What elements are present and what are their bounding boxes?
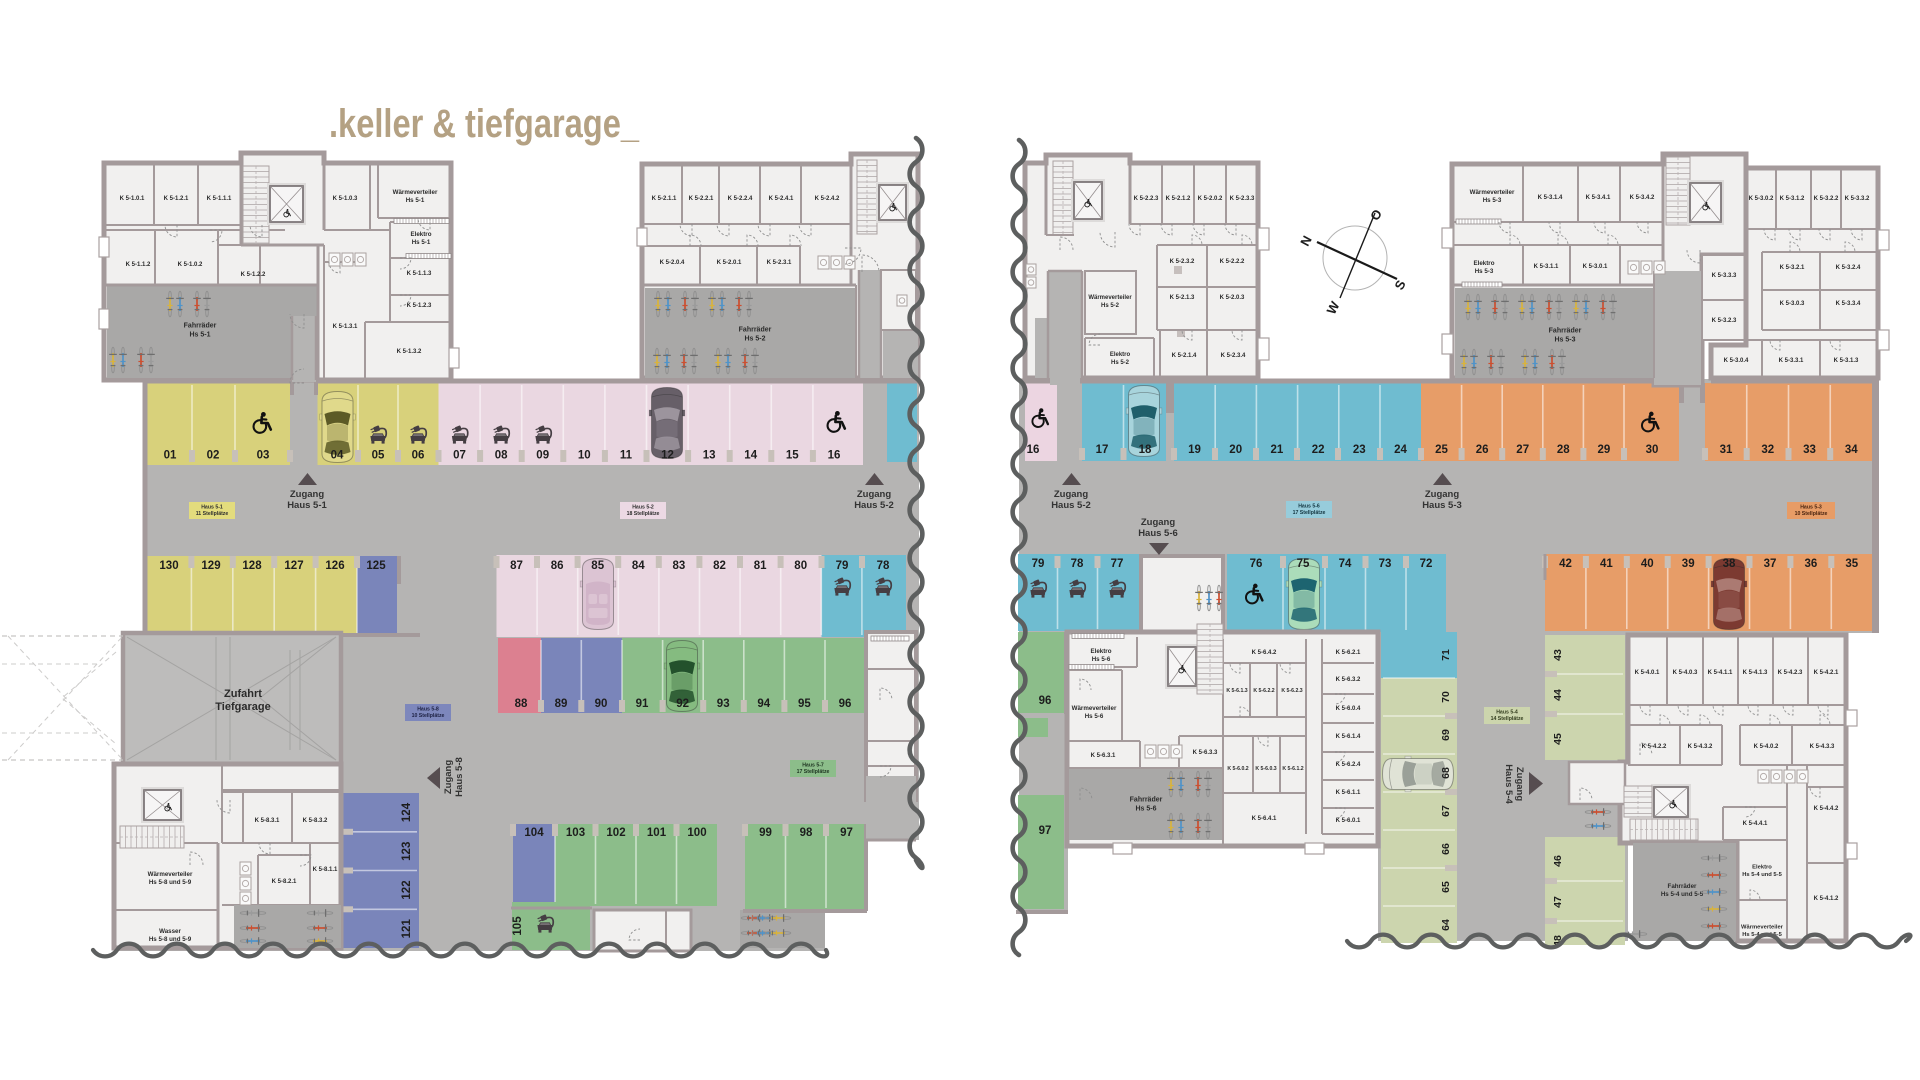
svg-text:K 5-2.0.3: K 5-2.0.3 bbox=[1220, 295, 1245, 301]
svg-text:Elektro: Elektro bbox=[1752, 864, 1772, 870]
svg-text:31: 31 bbox=[1720, 444, 1733, 456]
svg-text:K 5-1.2.3: K 5-1.2.3 bbox=[407, 303, 432, 309]
svg-text:39: 39 bbox=[1682, 558, 1695, 570]
svg-text:21: 21 bbox=[1271, 444, 1284, 456]
svg-text:K 5-1.0.2: K 5-1.0.2 bbox=[178, 262, 203, 268]
svg-text:19: 19 bbox=[1188, 444, 1201, 456]
svg-text:Hs 5-1: Hs 5-1 bbox=[406, 197, 425, 204]
svg-text:04: 04 bbox=[331, 450, 344, 462]
svg-text:29: 29 bbox=[1598, 444, 1611, 456]
svg-text:14 Stellplätze: 14 Stellplätze bbox=[1491, 716, 1524, 722]
svg-text:Haus 5-3: Haus 5-3 bbox=[1800, 505, 1822, 511]
svg-text:17 Stellplätze: 17 Stellplätze bbox=[1293, 510, 1326, 516]
svg-text:K 5-1.0.3: K 5-1.0.3 bbox=[333, 196, 358, 202]
svg-text:K 5-4.2.3: K 5-4.2.3 bbox=[1778, 670, 1803, 676]
svg-text:17: 17 bbox=[1096, 444, 1109, 456]
svg-text:38: 38 bbox=[1723, 558, 1736, 570]
svg-text:.keller & tiefgarage_: .keller & tiefgarage_ bbox=[329, 102, 640, 146]
svg-text:K 5-3.2.1: K 5-3.2.1 bbox=[1780, 265, 1805, 271]
svg-text:Hs 5-3: Hs 5-3 bbox=[1475, 268, 1494, 275]
svg-text:Hs 5-8 und 5-9: Hs 5-8 und 5-9 bbox=[149, 879, 192, 886]
svg-text:K 5-6.2.4: K 5-6.2.4 bbox=[1336, 762, 1361, 768]
svg-text:K 5-1.1.2: K 5-1.1.2 bbox=[126, 262, 151, 268]
svg-text:K 5-2.4.2: K 5-2.4.2 bbox=[815, 196, 840, 202]
svg-text:101: 101 bbox=[647, 827, 667, 839]
svg-text:26: 26 bbox=[1476, 444, 1489, 456]
svg-text:K 5-2.1.1: K 5-2.1.1 bbox=[652, 196, 677, 202]
svg-text:80: 80 bbox=[794, 560, 807, 572]
svg-text:Zufahrt: Zufahrt bbox=[224, 688, 262, 700]
svg-text:K 5-2.2.2: K 5-2.2.2 bbox=[1220, 259, 1245, 265]
svg-text:20: 20 bbox=[1229, 444, 1242, 456]
svg-text:83: 83 bbox=[673, 560, 686, 572]
svg-text:K 5-3.3.1: K 5-3.3.1 bbox=[1779, 358, 1804, 364]
svg-text:41: 41 bbox=[1600, 558, 1613, 570]
svg-text:45: 45 bbox=[1552, 733, 1564, 745]
svg-text:K 5-6.3.3: K 5-6.3.3 bbox=[1193, 750, 1218, 756]
svg-text:K 5-4.0.2: K 5-4.0.2 bbox=[1754, 744, 1779, 750]
svg-text:12: 12 bbox=[661, 450, 674, 462]
svg-text:02: 02 bbox=[207, 450, 220, 462]
svg-text:74: 74 bbox=[1339, 558, 1352, 570]
svg-text:72: 72 bbox=[1420, 558, 1433, 570]
svg-text:K 5-3.3.2: K 5-3.3.2 bbox=[1845, 196, 1870, 202]
svg-text:127: 127 bbox=[284, 560, 303, 572]
svg-text:K 5-2.2.4: K 5-2.2.4 bbox=[728, 196, 753, 202]
svg-text:66: 66 bbox=[1440, 843, 1452, 855]
svg-text:K 5-3.1.2: K 5-3.1.2 bbox=[1780, 196, 1805, 202]
svg-text:75: 75 bbox=[1297, 558, 1310, 570]
svg-text:K 5-3.0.4: K 5-3.0.4 bbox=[1724, 358, 1749, 364]
svg-text:97: 97 bbox=[1039, 825, 1052, 837]
svg-text:K 5-1.2.2: K 5-1.2.2 bbox=[241, 272, 266, 278]
svg-text:Haus 5-6: Haus 5-6 bbox=[1138, 528, 1178, 539]
svg-text:K 5-4.3.2: K 5-4.3.2 bbox=[1688, 744, 1713, 750]
svg-text:78: 78 bbox=[877, 560, 890, 572]
svg-text:28: 28 bbox=[1557, 444, 1570, 456]
svg-text:Elektro: Elektro bbox=[411, 231, 432, 238]
svg-text:86: 86 bbox=[551, 560, 564, 572]
svg-text:81: 81 bbox=[754, 560, 767, 572]
svg-text:128: 128 bbox=[242, 560, 262, 572]
svg-text:Zugang: Zugang bbox=[1425, 489, 1459, 500]
svg-text:K 5-2.0.4: K 5-2.0.4 bbox=[660, 260, 685, 266]
svg-text:Wärmeverteiler: Wärmeverteiler bbox=[1741, 924, 1784, 930]
svg-text:K 5-6.4.1: K 5-6.4.1 bbox=[1252, 816, 1277, 822]
svg-text:K 5-2.3.1: K 5-2.3.1 bbox=[767, 260, 792, 266]
svg-text:18 Stellplätze: 18 Stellplätze bbox=[627, 511, 660, 517]
svg-text:09: 09 bbox=[536, 450, 549, 462]
svg-text:46: 46 bbox=[1552, 855, 1564, 867]
svg-text:K 5-6.2.2: K 5-6.2.2 bbox=[1253, 688, 1274, 694]
svg-text:K 5-6.2.3: K 5-6.2.3 bbox=[1281, 688, 1302, 694]
svg-text:78: 78 bbox=[1071, 558, 1084, 570]
svg-text:Hs 5-4 und 5-5: Hs 5-4 und 5-5 bbox=[1661, 891, 1704, 898]
svg-text:15: 15 bbox=[786, 450, 799, 462]
svg-text:10 Stellplätze: 10 Stellplätze bbox=[1795, 511, 1828, 517]
svg-text:Zugang: Zugang bbox=[1141, 517, 1175, 528]
svg-text:Hs 5-1: Hs 5-1 bbox=[412, 239, 431, 246]
svg-text:Wärmeverteiler: Wärmeverteiler bbox=[1470, 189, 1515, 196]
svg-text:Hs 5-8 und 5-9: Hs 5-8 und 5-9 bbox=[149, 936, 192, 943]
svg-text:Wärmeverteiler: Wärmeverteiler bbox=[1072, 705, 1117, 712]
svg-text:K 5-2.3.3: K 5-2.3.3 bbox=[1230, 196, 1255, 202]
svg-text:K 5-2.0.1: K 5-2.0.1 bbox=[717, 260, 742, 266]
svg-text:07: 07 bbox=[453, 450, 466, 462]
svg-text:93: 93 bbox=[717, 698, 730, 710]
svg-text:Zugang: Zugang bbox=[1514, 767, 1525, 801]
svg-text:K 5-6.1.2: K 5-6.1.2 bbox=[1282, 766, 1303, 772]
svg-text:K 5-4.2.2: K 5-4.2.2 bbox=[1642, 744, 1667, 750]
svg-text:18: 18 bbox=[1139, 444, 1152, 456]
svg-text:K 5-4.4.1: K 5-4.4.1 bbox=[1743, 821, 1768, 827]
svg-text:K 5-4.3.3: K 5-4.3.3 bbox=[1810, 744, 1835, 750]
svg-text:96: 96 bbox=[1039, 695, 1052, 707]
svg-text:K 5-2.4.1: K 5-2.4.1 bbox=[769, 196, 794, 202]
svg-text:77: 77 bbox=[1111, 558, 1124, 570]
svg-text:103: 103 bbox=[566, 827, 585, 839]
svg-text:33: 33 bbox=[1803, 444, 1816, 456]
svg-text:126: 126 bbox=[325, 560, 344, 572]
svg-text:Hs 5-2: Hs 5-2 bbox=[1111, 360, 1130, 366]
svg-text:K 5-1.0.1: K 5-1.0.1 bbox=[120, 196, 145, 202]
svg-text:Hs 5-3: Hs 5-3 bbox=[1483, 197, 1502, 204]
svg-text:25: 25 bbox=[1435, 444, 1448, 456]
svg-text:24: 24 bbox=[1394, 444, 1407, 456]
svg-text:17 Stellplätze: 17 Stellplätze bbox=[797, 769, 830, 775]
svg-text:K 5-3.2.3: K 5-3.2.3 bbox=[1712, 318, 1737, 324]
svg-text:K 5-6.3.1: K 5-6.3.1 bbox=[1091, 753, 1116, 759]
svg-text:06: 06 bbox=[412, 450, 425, 462]
svg-text:96: 96 bbox=[839, 698, 852, 710]
svg-text:124: 124 bbox=[401, 802, 413, 822]
svg-text:K 5-6.2.1: K 5-6.2.1 bbox=[1336, 650, 1361, 656]
svg-text:K 5-3.0.2: K 5-3.0.2 bbox=[1749, 196, 1774, 202]
svg-text:Wärmeverteiler: Wärmeverteiler bbox=[1088, 295, 1132, 301]
svg-text:98: 98 bbox=[800, 827, 813, 839]
svg-text:70: 70 bbox=[1440, 691, 1452, 703]
svg-text:40: 40 bbox=[1641, 558, 1654, 570]
svg-text:Haus 5-7: Haus 5-7 bbox=[802, 763, 824, 769]
svg-text:Haus 5-6: Haus 5-6 bbox=[1298, 504, 1320, 510]
svg-text:Wärmeverteiler: Wärmeverteiler bbox=[148, 871, 193, 878]
svg-text:K 5-6.0.1: K 5-6.0.1 bbox=[1336, 818, 1361, 824]
svg-text:79: 79 bbox=[836, 560, 849, 572]
svg-text:22: 22 bbox=[1312, 444, 1325, 456]
svg-text:69: 69 bbox=[1440, 729, 1452, 741]
svg-text:Fahrräder: Fahrräder bbox=[1130, 797, 1163, 804]
svg-text:05: 05 bbox=[372, 450, 385, 462]
svg-text:Fahrräder: Fahrräder bbox=[1549, 328, 1582, 335]
svg-text:85: 85 bbox=[591, 560, 604, 572]
svg-text:Haus 5-2: Haus 5-2 bbox=[1051, 500, 1091, 511]
svg-text:K 5-2.1.3: K 5-2.1.3 bbox=[1170, 295, 1195, 301]
svg-text:122: 122 bbox=[401, 880, 413, 899]
svg-text:K 5-1.3.2: K 5-1.3.2 bbox=[397, 349, 422, 355]
svg-text:Hs 5-6: Hs 5-6 bbox=[1085, 713, 1104, 720]
svg-text:73: 73 bbox=[1379, 558, 1392, 570]
svg-text:82: 82 bbox=[713, 560, 726, 572]
svg-text:130: 130 bbox=[159, 560, 178, 572]
svg-text:13: 13 bbox=[703, 450, 716, 462]
svg-text:34: 34 bbox=[1845, 444, 1858, 456]
svg-text:K 5-3.0.3: K 5-3.0.3 bbox=[1780, 301, 1805, 307]
svg-text:K 5-6.0.3: K 5-6.0.3 bbox=[1255, 766, 1276, 772]
svg-text:89: 89 bbox=[555, 698, 568, 710]
svg-text:94: 94 bbox=[757, 698, 770, 710]
svg-text:Elektro: Elektro bbox=[1474, 260, 1495, 267]
svg-text:99: 99 bbox=[759, 827, 772, 839]
svg-text:K 5-8.2.1: K 5-8.2.1 bbox=[272, 879, 297, 885]
svg-text:Hs 5-3: Hs 5-3 bbox=[1554, 337, 1575, 344]
svg-text:10 Stellplätze: 10 Stellplätze bbox=[412, 713, 445, 719]
svg-text:76: 76 bbox=[1250, 558, 1263, 570]
svg-text:102: 102 bbox=[606, 827, 625, 839]
svg-text:K 5-3.3.4: K 5-3.3.4 bbox=[1836, 301, 1861, 307]
svg-text:35: 35 bbox=[1845, 558, 1858, 570]
svg-text:92: 92 bbox=[676, 698, 689, 710]
svg-text:71: 71 bbox=[1440, 649, 1452, 661]
svg-text:Haus 5-1: Haus 5-1 bbox=[201, 505, 223, 511]
svg-text:Hs 5-6: Hs 5-6 bbox=[1092, 656, 1111, 663]
svg-text:K 5-2.3.2: K 5-2.3.2 bbox=[1170, 259, 1195, 265]
svg-text:90: 90 bbox=[595, 698, 608, 710]
svg-text:121: 121 bbox=[401, 919, 413, 939]
svg-text:97: 97 bbox=[840, 827, 853, 839]
svg-text:Hs 5-2: Hs 5-2 bbox=[1101, 303, 1120, 309]
svg-text:100: 100 bbox=[687, 827, 706, 839]
svg-text:30: 30 bbox=[1646, 444, 1659, 456]
svg-text:K 5-3.1.3: K 5-3.1.3 bbox=[1834, 358, 1859, 364]
svg-text:Haus 5-3: Haus 5-3 bbox=[1422, 500, 1462, 511]
svg-text:87: 87 bbox=[510, 560, 523, 572]
svg-text:84: 84 bbox=[632, 560, 645, 572]
svg-text:K 5-6.1.3: K 5-6.1.3 bbox=[1226, 688, 1247, 694]
svg-text:Haus 5-4: Haus 5-4 bbox=[1496, 710, 1518, 716]
svg-text:K 5-2.2.1: K 5-2.2.1 bbox=[689, 196, 714, 202]
svg-text:Fahrräder: Fahrräder bbox=[739, 327, 772, 334]
svg-text:K 5-3.1.4: K 5-3.1.4 bbox=[1538, 195, 1563, 201]
svg-text:125: 125 bbox=[366, 560, 386, 572]
svg-text:44: 44 bbox=[1552, 689, 1564, 701]
svg-text:K 5-4.1.1: K 5-4.1.1 bbox=[1708, 670, 1733, 676]
svg-text:123: 123 bbox=[401, 842, 413, 861]
svg-text:K 5-6.3.2: K 5-6.3.2 bbox=[1336, 677, 1361, 683]
svg-text:37: 37 bbox=[1764, 558, 1777, 570]
svg-text:11: 11 bbox=[620, 450, 633, 462]
svg-text:K 5-2.0.2: K 5-2.0.2 bbox=[1198, 196, 1223, 202]
svg-text:Haus 5-2: Haus 5-2 bbox=[854, 500, 894, 511]
svg-text:K 5-2.1.2: K 5-2.1.2 bbox=[1166, 196, 1191, 202]
svg-text:91: 91 bbox=[636, 698, 649, 710]
svg-text:Hs 5-1: Hs 5-1 bbox=[189, 332, 210, 339]
svg-text:K 5-2.2.3: K 5-2.2.3 bbox=[1134, 196, 1159, 202]
svg-text:Haus 5-2: Haus 5-2 bbox=[632, 505, 654, 511]
svg-text:K 5-1.3.1: K 5-1.3.1 bbox=[333, 324, 358, 330]
svg-text:14: 14 bbox=[744, 450, 757, 462]
svg-text:Wärmeverteiler: Wärmeverteiler bbox=[393, 189, 438, 196]
svg-text:Fahrräder: Fahrräder bbox=[184, 323, 217, 330]
svg-text:K 5-3.0.1: K 5-3.0.1 bbox=[1583, 264, 1608, 270]
svg-text:K 5-6.4.2: K 5-6.4.2 bbox=[1252, 650, 1277, 656]
svg-text:Fahrräder: Fahrräder bbox=[1668, 883, 1697, 890]
svg-text:105: 105 bbox=[512, 916, 524, 936]
svg-text:K 5-4.1.3: K 5-4.1.3 bbox=[1743, 670, 1768, 676]
svg-text:K 5-4.0.1: K 5-4.0.1 bbox=[1635, 670, 1660, 676]
svg-text:K 5-6.0.2: K 5-6.0.2 bbox=[1227, 766, 1248, 772]
svg-text:43: 43 bbox=[1552, 649, 1564, 661]
svg-text:Haus 5-4: Haus 5-4 bbox=[1503, 764, 1514, 804]
svg-text:16: 16 bbox=[1027, 444, 1040, 456]
svg-text:K 5-6.1.1: K 5-6.1.1 bbox=[1336, 790, 1361, 796]
svg-text:67: 67 bbox=[1440, 805, 1452, 817]
svg-text:Zugang: Zugang bbox=[290, 489, 324, 500]
svg-text:K 5-8.1.1: K 5-8.1.1 bbox=[313, 867, 338, 873]
svg-text:36: 36 bbox=[1805, 558, 1818, 570]
svg-text:K 5-8.3.1: K 5-8.3.1 bbox=[255, 818, 280, 824]
svg-text:K 5-2.3.4: K 5-2.3.4 bbox=[1221, 353, 1246, 359]
svg-text:K 5-3.1.1: K 5-3.1.1 bbox=[1534, 264, 1559, 270]
svg-text:88: 88 bbox=[515, 698, 528, 710]
svg-text:Wasser: Wasser bbox=[159, 928, 181, 935]
svg-text:79: 79 bbox=[1032, 558, 1045, 570]
svg-text:K 5-6.0.4: K 5-6.0.4 bbox=[1336, 706, 1361, 712]
svg-text:K 5-4.0.3: K 5-4.0.3 bbox=[1673, 670, 1698, 676]
svg-text:47: 47 bbox=[1552, 896, 1564, 908]
svg-text:K 5-3.2.4: K 5-3.2.4 bbox=[1836, 265, 1861, 271]
svg-text:Haus 5-8: Haus 5-8 bbox=[417, 707, 439, 713]
svg-text:129: 129 bbox=[201, 560, 220, 572]
svg-text:01: 01 bbox=[164, 450, 177, 462]
svg-text:64: 64 bbox=[1440, 919, 1452, 931]
svg-text:Zugang: Zugang bbox=[1054, 489, 1088, 500]
svg-text:Zugang: Zugang bbox=[443, 760, 454, 794]
svg-text:68: 68 bbox=[1440, 767, 1452, 779]
svg-text:23: 23 bbox=[1353, 444, 1366, 456]
svg-text:K 5-6.1.4: K 5-6.1.4 bbox=[1336, 734, 1361, 740]
svg-text:10: 10 bbox=[578, 450, 591, 462]
svg-text:K 5-3.4.2: K 5-3.4.2 bbox=[1630, 195, 1655, 201]
svg-text:K 5-1.1.1: K 5-1.1.1 bbox=[207, 196, 232, 202]
svg-text:Tiefgarage: Tiefgarage bbox=[215, 701, 270, 713]
svg-text:Elektro: Elektro bbox=[1110, 352, 1131, 358]
svg-text:Elektro: Elektro bbox=[1091, 648, 1112, 655]
svg-text:Hs 5-2: Hs 5-2 bbox=[744, 336, 765, 343]
svg-text:104: 104 bbox=[524, 827, 544, 839]
svg-text:27: 27 bbox=[1516, 444, 1529, 456]
svg-text:K 5-2.1.4: K 5-2.1.4 bbox=[1172, 353, 1197, 359]
svg-text:K 5-4.4.2: K 5-4.4.2 bbox=[1814, 806, 1839, 812]
svg-text:K 5-3.2.2: K 5-3.2.2 bbox=[1814, 196, 1839, 202]
svg-text:Zugang: Zugang bbox=[857, 489, 891, 500]
svg-text:65: 65 bbox=[1440, 881, 1452, 893]
svg-text:K 5-8.3.2: K 5-8.3.2 bbox=[303, 818, 328, 824]
svg-text:K 5-4.1.2: K 5-4.1.2 bbox=[1814, 896, 1839, 902]
svg-text:42: 42 bbox=[1559, 558, 1572, 570]
svg-text:K 5-1.2.1: K 5-1.2.1 bbox=[164, 196, 189, 202]
svg-text:Haus 5-8: Haus 5-8 bbox=[454, 757, 465, 797]
svg-text:K 5-4.2.1: K 5-4.2.1 bbox=[1814, 670, 1839, 676]
svg-text:95: 95 bbox=[798, 698, 811, 710]
svg-text:32: 32 bbox=[1761, 444, 1774, 456]
svg-text:K 5-1.1.3: K 5-1.1.3 bbox=[407, 271, 432, 277]
svg-text:03: 03 bbox=[257, 450, 270, 462]
svg-text:K 5-3.4.1: K 5-3.4.1 bbox=[1586, 195, 1611, 201]
svg-text:08: 08 bbox=[495, 450, 508, 462]
svg-text:Hs 5-4 und 5-5: Hs 5-4 und 5-5 bbox=[1742, 872, 1782, 878]
svg-text:Hs 5-6: Hs 5-6 bbox=[1135, 806, 1156, 813]
svg-text:11 Stellplätze: 11 Stellplätze bbox=[196, 511, 229, 517]
svg-text:Haus 5-1: Haus 5-1 bbox=[287, 500, 327, 511]
svg-text:16: 16 bbox=[828, 450, 841, 462]
svg-text:K 5-3.3.3: K 5-3.3.3 bbox=[1712, 273, 1737, 279]
